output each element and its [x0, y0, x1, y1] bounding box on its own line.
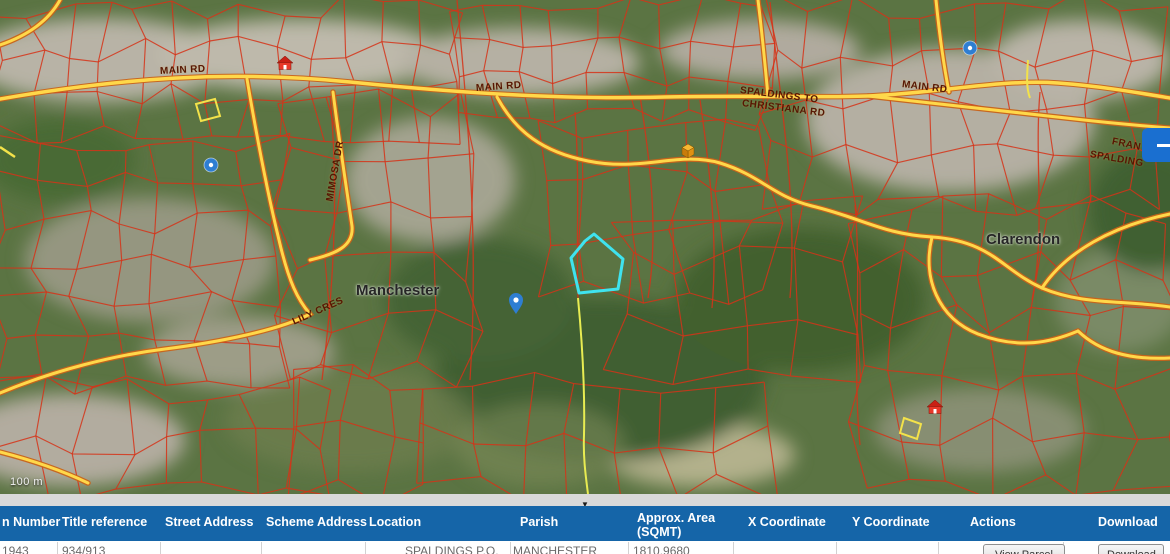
place-label-clarendon: Clarendon	[986, 231, 1060, 248]
column-separator	[261, 542, 262, 554]
column-separator	[365, 542, 366, 554]
cell-number: 1943	[2, 544, 29, 554]
col-header-scheme-address: Scheme Address	[266, 515, 367, 529]
results-table-header: n Number Title reference Street Address …	[0, 506, 1170, 541]
map-pin[interactable]	[203, 157, 219, 173]
col-header-y-coordinate: Y Coordinate	[852, 515, 930, 529]
gis-parcel-app: MAIN RDMAIN RDMAIN RDSPALDINGS TOCHRISTI…	[0, 0, 1170, 554]
cell-parish: MANCHESTER	[513, 544, 597, 554]
approx-area-label: Approx. Area	[637, 511, 715, 525]
col-header-parish: Parish	[520, 515, 558, 529]
house-icon	[277, 56, 293, 70]
map-pin[interactable]	[962, 40, 978, 56]
col-header-number: n Number	[2, 515, 60, 529]
cell-location: SPALDINGS P.O.	[405, 544, 499, 554]
column-separator	[733, 542, 734, 554]
place-label-manchester: Manchester	[356, 282, 439, 299]
column-separator	[160, 542, 161, 554]
scale-bar-label: 100 m	[10, 476, 43, 488]
approx-area-unit: (SQMT)	[637, 525, 681, 539]
col-header-approx-area: Approx. Area (SQMT)	[637, 511, 715, 539]
view-parcel-button[interactable]: View Parcel	[983, 544, 1065, 554]
minus-icon	[1157, 144, 1170, 147]
col-header-x-coordinate: X Coordinate	[748, 515, 826, 529]
map-viewport[interactable]: MAIN RDMAIN RDMAIN RDSPALDINGS TOCHRISTI…	[0, 0, 1170, 494]
building-3d-icon	[681, 144, 695, 159]
house-icon	[927, 400, 943, 414]
download-button[interactable]: Download	[1098, 544, 1164, 554]
col-header-download: Download	[1098, 515, 1158, 529]
column-separator	[510, 542, 511, 554]
column-separator	[836, 542, 837, 554]
cell-title-reference: 934/913	[62, 544, 105, 554]
col-header-location: Location	[369, 515, 421, 529]
col-header-actions: Actions	[970, 515, 1016, 529]
column-separator	[57, 542, 58, 554]
table-divider-bar: ▼	[0, 494, 1170, 506]
column-separator	[628, 542, 629, 554]
cell-approx-area: 1810.9680	[633, 544, 690, 554]
column-separator	[938, 542, 939, 554]
col-header-title-reference: Title reference	[62, 515, 147, 529]
map-pin-teardrop[interactable]	[507, 291, 525, 315]
col-header-street-address: Street Address	[165, 515, 253, 529]
collapse-panel-button[interactable]	[1142, 128, 1170, 162]
